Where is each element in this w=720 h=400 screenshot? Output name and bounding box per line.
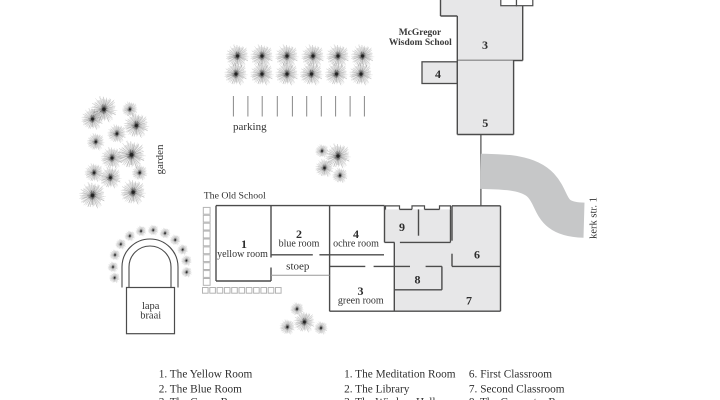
svg-text:8. The Computer Room: 8. The Computer Room bbox=[469, 396, 576, 400]
svg-text:9: 9 bbox=[399, 220, 405, 234]
svg-text:8: 8 bbox=[415, 273, 421, 287]
svg-text:6. First Classroom: 6. First Classroom bbox=[469, 368, 552, 380]
svg-text:McGregor: McGregor bbox=[399, 28, 442, 38]
svg-text:6: 6 bbox=[474, 248, 480, 262]
svg-text:3: 3 bbox=[482, 38, 488, 52]
svg-text:7. Second Classroom: 7. Second Classroom bbox=[469, 383, 565, 395]
svg-text:blue room: blue room bbox=[279, 239, 320, 250]
svg-text:kerk str. 1: kerk str. 1 bbox=[589, 197, 600, 239]
svg-text:1. The Meditation Room: 1. The Meditation Room bbox=[344, 368, 456, 380]
svg-text:3. The Green Room: 3. The Green Room bbox=[159, 396, 249, 400]
svg-text:ochre room: ochre room bbox=[333, 239, 379, 250]
svg-text:1. The Yellow Room: 1. The Yellow Room bbox=[159, 368, 253, 380]
svg-text:stoep: stoep bbox=[286, 261, 310, 273]
svg-text:7: 7 bbox=[466, 294, 472, 308]
svg-text:yellow room: yellow room bbox=[217, 249, 268, 260]
svg-text:3. The Wisdom Hall: 3. The Wisdom Hall bbox=[344, 396, 435, 400]
svg-text:4: 4 bbox=[435, 67, 441, 81]
svg-text:parking: parking bbox=[233, 121, 267, 133]
svg-text:green room: green room bbox=[338, 296, 384, 307]
svg-text:2. The Blue Room: 2. The Blue Room bbox=[159, 383, 242, 395]
svg-text:garden: garden bbox=[154, 144, 166, 174]
svg-text:The Old School: The Old School bbox=[204, 190, 266, 201]
svg-text:2. The Library: 2. The Library bbox=[344, 383, 410, 395]
svg-text:braai: braai bbox=[140, 310, 161, 321]
svg-text:Wisdom School: Wisdom School bbox=[389, 38, 452, 48]
svg-text:5: 5 bbox=[482, 116, 488, 130]
